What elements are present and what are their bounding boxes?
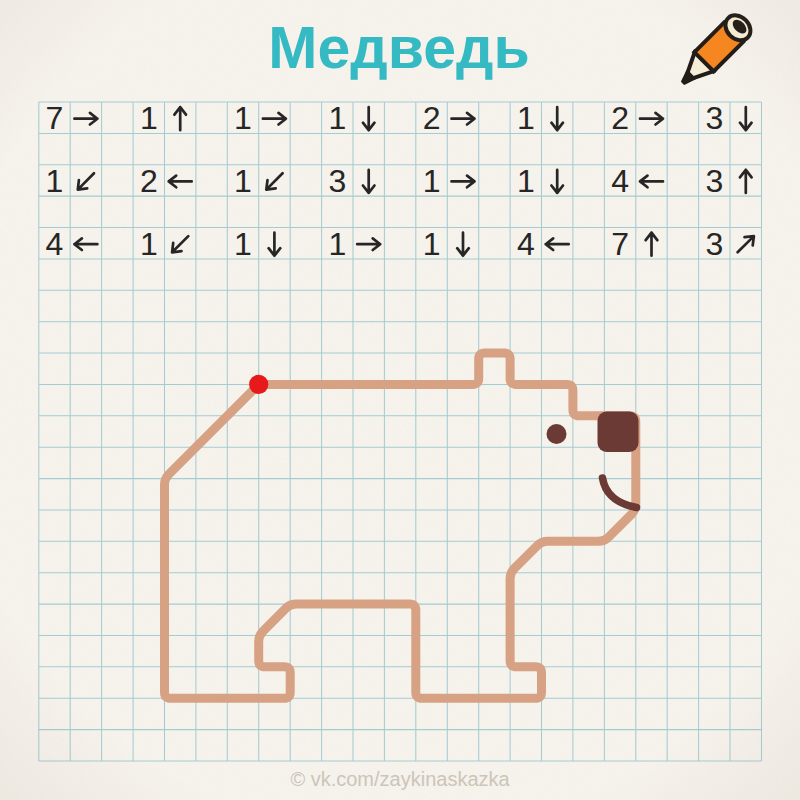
svg-text:© vk.com/zaykinaskazka: © vk.com/zaykinaskazka	[290, 768, 510, 790]
